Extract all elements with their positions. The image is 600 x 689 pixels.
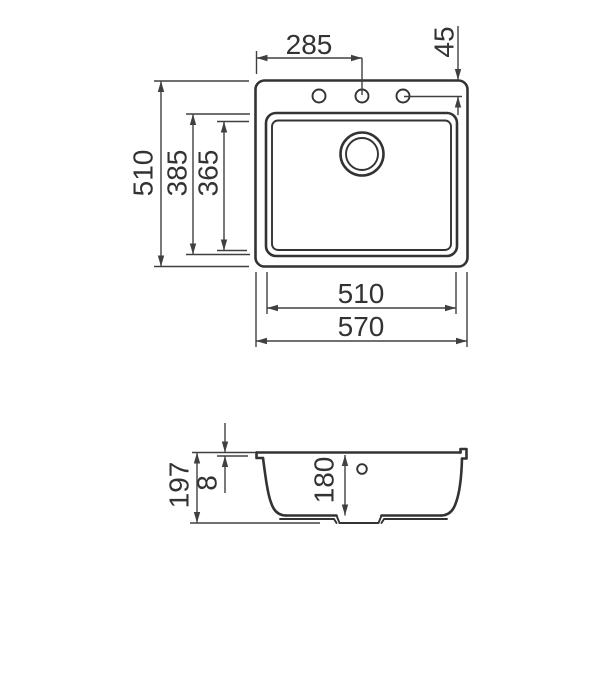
bowl-right-wall [441, 459, 462, 516]
arrowhead-down [158, 256, 164, 267]
dim-bowl-depth: 180 [309, 455, 349, 516]
dim-overall-depth-label: 510 [128, 150, 159, 197]
bowl-outer-edge [266, 113, 457, 256]
sink-outer-edge [256, 81, 468, 267]
faucet-hole-left [313, 90, 326, 103]
top-view-outline [256, 81, 468, 267]
arrowhead-up [158, 81, 164, 92]
arrowhead-up [222, 456, 228, 467]
arrowhead-right [351, 55, 362, 61]
dim-rim-thickness: 8 [192, 423, 249, 493]
arrowhead-up [221, 122, 227, 133]
section-outline [257, 449, 467, 523]
arrowhead-up [455, 97, 461, 108]
arrowhead-down [455, 69, 461, 80]
arrowhead-down [190, 244, 196, 255]
drawing-canvas: 285 45 510 385 [0, 0, 600, 689]
arrowhead-down [194, 512, 200, 523]
arrowhead-up [190, 114, 196, 125]
arrowhead-down [221, 240, 227, 251]
arrowhead-down [222, 442, 228, 453]
dim-bowl-width: 510 [267, 272, 456, 314]
dim-rim-thickness-label: 8 [192, 475, 223, 491]
sink-technical-drawing: 285 45 510 385 [0, 0, 600, 689]
drain-inner-ring [346, 138, 378, 170]
arrowhead-down [342, 505, 348, 516]
dim-overall-width-label: 570 [338, 311, 385, 342]
drain-recess [337, 516, 382, 524]
rim-right-lip [461, 449, 467, 459]
arrowhead-left [256, 338, 267, 344]
dim-faucet-center: 285 [257, 29, 363, 95]
top-view: 285 45 510 385 [128, 26, 468, 347]
arrowhead-up [194, 453, 200, 464]
section-view: 197 8 180 [164, 423, 467, 523]
arrowhead-left [267, 305, 278, 311]
arrowhead-left [257, 55, 268, 61]
dim-bowl-inner-depth: 365 [193, 122, 250, 251]
dim-bowl-depth-label: 180 [309, 457, 340, 504]
dim-bowl-outer-depth-label: 385 [162, 150, 193, 197]
bowl-inner-edge [272, 121, 451, 251]
bowl-left-wall [263, 458, 286, 516]
dim-bowl-width-label: 510 [338, 278, 385, 309]
dim-bowl-inner-depth-label: 365 [193, 150, 224, 197]
shell-bottom-right [382, 519, 448, 523]
arrowhead-right [445, 305, 456, 311]
dim-overall-height: 197 [164, 453, 321, 524]
dim-overall-height-label: 197 [164, 462, 195, 509]
faucet-hole-section [357, 464, 367, 474]
dim-faucet-offset: 45 [404, 26, 462, 115]
dim-faucet-center-label: 285 [286, 29, 333, 60]
arrowhead-up [342, 455, 348, 466]
arrowhead-right [456, 338, 467, 344]
dim-faucet-offset-label: 45 [429, 26, 460, 57]
